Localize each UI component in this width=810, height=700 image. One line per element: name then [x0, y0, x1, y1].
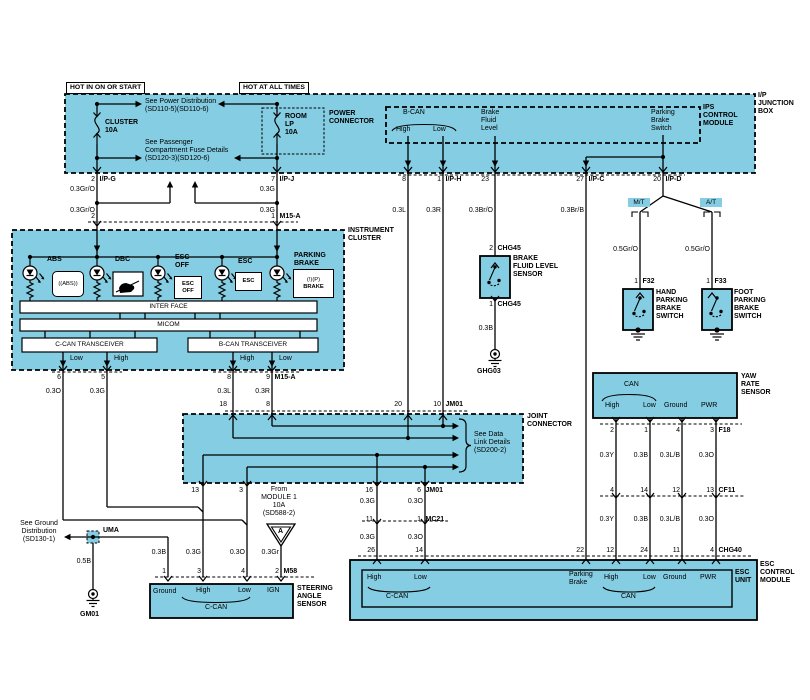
- bcan-low-label: Low: [433, 126, 446, 134]
- hand-switch-ground-icon: [631, 334, 645, 340]
- room-fuse-label: ROOM LP 10A: [285, 113, 307, 137]
- pin-ipd: 20I/P-D: [652, 176, 681, 184]
- see-passenger-note: See Passenger Compartment Fuse Details (…: [145, 139, 228, 163]
- ghg03-ground-icon: [489, 350, 502, 367]
- f33-pin1: 1F33: [701, 278, 727, 286]
- f18-pin4: 4: [671, 427, 680, 435]
- hot-at-all-times-label: HOT AT ALL TIMES: [239, 82, 309, 94]
- bcan-transceiver-label: B-CAN TRANSCEIVER: [188, 341, 318, 348]
- wire-y1: 0.3Y: [580, 452, 614, 459]
- chg40-pin22: 22: [575, 547, 584, 555]
- m58-pin2: 2M58: [270, 568, 297, 576]
- esc-can-high-label: High: [604, 574, 618, 582]
- pin-ipj: 7I/P-J: [266, 176, 294, 184]
- at-chip: A/T: [700, 198, 722, 207]
- esc-control-module-box: [350, 560, 757, 620]
- foot-switch-ground-icon: [710, 334, 724, 340]
- jm01-pin8: 8: [261, 401, 270, 409]
- wire-r-cl: 0.3R: [236, 388, 270, 395]
- sas-low-label: Low: [238, 587, 251, 595]
- wire-b1: 0.3B: [614, 452, 648, 459]
- abs-label: ABS: [47, 256, 62, 264]
- wire-y2: 0.3Y: [580, 516, 614, 523]
- wire-o-mc: 0.3O: [389, 534, 423, 541]
- wire-b5: 0.5B: [57, 558, 91, 565]
- wire-o-m58: 0.3O: [211, 549, 245, 556]
- jm01-pin20: 20: [393, 401, 402, 409]
- ip-junction-box-label: I/P JUNCTION BOX: [758, 92, 794, 116]
- esc-can-label: CAN: [621, 593, 636, 601]
- wire-g-jm: 0.3G: [341, 498, 375, 505]
- wire-b-m58: 0.3B: [132, 549, 166, 556]
- m15a-pin2: 2: [86, 213, 95, 221]
- brake-fluid-sensor-label: BRAKE FLUID LEVEL SENSOR: [513, 255, 558, 279]
- yaw-high-label: High: [605, 402, 619, 410]
- jm01-pin10: 10JM01: [432, 401, 463, 409]
- gm01-label: GM01: [80, 611, 99, 619]
- m58-pin4: 4: [236, 568, 245, 576]
- cf11-pin14: 14: [639, 487, 648, 495]
- chg40-pin11: 11: [671, 547, 680, 555]
- cluster-fuse-label: CLUSTER 10A: [105, 119, 138, 135]
- m15a-pin6: 6: [52, 374, 61, 382]
- wire-brb: 0.3Br/B: [550, 207, 584, 214]
- ghg03-label: GHG03: [477, 368, 501, 376]
- brake-fluid-level-label: Brake Fluid Level: [481, 109, 499, 133]
- cf11-pin13: 13CF11: [705, 487, 735, 495]
- chg40-pin14: 14: [414, 547, 423, 555]
- esc-off-label: ESC OFF: [175, 254, 189, 270]
- esc-ccan-label: C-CAN: [386, 593, 408, 601]
- micom-bar-label: MICOM: [20, 321, 317, 328]
- esc-icon: ESC: [235, 272, 262, 291]
- triangle-a-label: A: [278, 528, 283, 536]
- f18-pin1: 1: [639, 427, 648, 435]
- esc-parking-brake-label: Parking Brake: [569, 571, 593, 587]
- bcan-label: B-CAN: [403, 109, 425, 117]
- esc-ccan-low-label: Low: [414, 574, 427, 582]
- pin-ipc: 27I/P-C: [575, 176, 604, 184]
- cf11-pin12: 12: [671, 487, 680, 495]
- dbc-label: DBC: [115, 256, 130, 264]
- ccan-transceiver-label: C-CAN TRANSCEIVER: [22, 341, 157, 348]
- wire-g-mc: 0.3G: [341, 534, 375, 541]
- pin-iph: 1I/P-H: [432, 176, 461, 184]
- esc-pwr-label: PWR: [700, 574, 716, 582]
- esc-control-module-label: ESC CONTROL MODULE: [760, 561, 795, 585]
- m15a-pin1: 1M15-A: [266, 213, 301, 221]
- wire-o-cl: 0.3O: [27, 388, 61, 395]
- bcan-high-out-label: High: [240, 355, 254, 363]
- cf11-pin4: 4: [605, 487, 614, 495]
- jm01-pin18: 18: [218, 401, 227, 409]
- chg40-pin24: 24: [639, 547, 648, 555]
- chg40-pin12: 12: [605, 547, 614, 555]
- m15a-pin5: 5: [96, 374, 105, 382]
- wire-gro-at: 0.5Gr/O: [676, 246, 710, 253]
- foot-parking-switch-box: [702, 289, 732, 330]
- ips-module-label: IPS CONTROL MODULE: [703, 104, 738, 128]
- sas-high-label: High: [196, 587, 210, 595]
- ccan-low-out-label: Low: [70, 355, 83, 363]
- wire-l-ips: 0.3L: [372, 207, 406, 214]
- m15a-pin9: 9M15-A: [261, 374, 296, 382]
- hand-parking-switch-label: HAND PARKING BRAKE SWITCH: [656, 289, 688, 321]
- jm01-pin6: 6JM01: [412, 487, 443, 495]
- wire-b2: 0.3B: [614, 516, 648, 523]
- see-power-note: See Power Distribution (SD110-5)(SD110-6…: [145, 98, 216, 114]
- wire-b-bfl: 0.3B: [459, 325, 493, 332]
- uma-label: UMA: [103, 527, 119, 535]
- wire-o2: 0.3O: [680, 516, 714, 523]
- see-ground-note: See Ground Distribution (SD130-1): [10, 520, 68, 544]
- joint-connector-label: JOINT CONNECTOR: [527, 413, 572, 429]
- mc21-pin1: 1MC21: [412, 516, 444, 524]
- esc-label: ESC: [238, 258, 252, 266]
- chg40-pin4: 4CHG40: [705, 547, 742, 555]
- yaw-rate-sensor-label: YAW RATE SENSOR: [741, 373, 771, 397]
- power-connector-label: POWER CONNECTOR: [329, 110, 374, 126]
- jm01-pin16: 16: [364, 487, 373, 495]
- wire-l-cl: 0.3L: [197, 388, 231, 395]
- chg45-pin2: 2CHG45: [484, 245, 521, 253]
- joint-connector-box: [183, 414, 523, 483]
- chg40-pin26: 26: [366, 547, 375, 555]
- mt-chip: M/T: [628, 198, 650, 207]
- f32-pin1: 1F32: [629, 278, 655, 286]
- wire-g1: 0.3G: [241, 186, 275, 193]
- abs-icon: ((ABS)): [52, 271, 84, 297]
- foot-parking-switch-label: FOOT PARKING BRAKE SWITCH: [734, 289, 766, 321]
- wire-lb2: 0.3L/B: [646, 516, 680, 523]
- instrument-cluster-label: INSTRUMENT CLUSTER: [348, 227, 394, 243]
- f18-pin3: 3F18: [705, 427, 731, 435]
- yaw-can-label: CAN: [624, 381, 639, 389]
- hot-in-on-start-label: HOT IN ON OR START: [66, 82, 145, 94]
- yaw-pwr-label: PWR: [701, 402, 717, 410]
- gm01-ground-icon: [87, 590, 100, 607]
- yaw-low-label: Low: [643, 402, 656, 410]
- esc-can-low-label: Low: [643, 574, 656, 582]
- f18-pin2: 2: [605, 427, 614, 435]
- sas-ccan-label: C-CAN: [205, 604, 227, 612]
- wire-g-m58: 0.3G: [167, 549, 201, 556]
- sas-ign-label: IGN: [267, 587, 279, 595]
- wire-bro: 0.3Br/O: [459, 207, 493, 214]
- pin-ipg: 2I/P-G: [86, 176, 116, 184]
- mc21-pin11: 11: [364, 516, 373, 524]
- parking-brake-switch-label: Parking Brake Switch: [651, 109, 675, 133]
- esc-off-icon: ESC OFF: [174, 276, 202, 299]
- esc-ccan-high-label: High: [367, 574, 381, 582]
- wire-gr-m58: 0.3Gr: [245, 549, 279, 556]
- bcan-high-label: High: [396, 126, 410, 134]
- wiring-diagram-page: HOT IN ON OR START HOT AT ALL TIMES See …: [0, 0, 810, 700]
- wire-gro-mt: 0.5Gr/O: [604, 246, 638, 253]
- see-data-link-note: See Data Link Details (SD200-2): [474, 431, 510, 455]
- esc-unit-label: ESC UNIT: [735, 569, 751, 585]
- wire-o1: 0.3O: [680, 452, 714, 459]
- from-module-note: From MODULE 1 10A (SD588-2): [250, 486, 308, 518]
- interface-bar-label: INTER FACE: [20, 303, 317, 310]
- bcan-low-out-label: Low: [279, 355, 292, 363]
- esc-ground-label: Ground: [663, 574, 686, 582]
- m15a-pin8: 8: [222, 374, 231, 382]
- wire-o-jm: 0.3O: [389, 498, 423, 505]
- parking-brake-icon: (!)(P)BRAKE: [293, 269, 334, 298]
- jm01-pin3: 3: [234, 487, 243, 495]
- sas-ground-label: Ground: [153, 588, 176, 596]
- chg45-pin1: 1CHG45: [484, 301, 521, 309]
- m58-pin1: 1: [157, 568, 166, 576]
- wire-g-cl: 0.3G: [71, 388, 105, 395]
- ccan-high-out-label: High: [114, 355, 128, 363]
- m58-pin3: 3: [192, 568, 201, 576]
- jm01-pin13: 13: [190, 487, 199, 495]
- wire-lb1: 0.3L/B: [646, 452, 680, 459]
- wire-gro1: 0.3Gr/O: [61, 186, 95, 193]
- yaw-ground-label: Ground: [664, 402, 687, 410]
- parking-brake-label: PARKING BRAKE: [294, 252, 326, 268]
- wire-r-ips: 0.3R: [407, 207, 441, 214]
- pin-8: 8: [397, 176, 406, 184]
- steering-angle-sensor-label: STEERING ANGLE SENSOR: [297, 585, 333, 609]
- pin-23: 23: [480, 176, 489, 184]
